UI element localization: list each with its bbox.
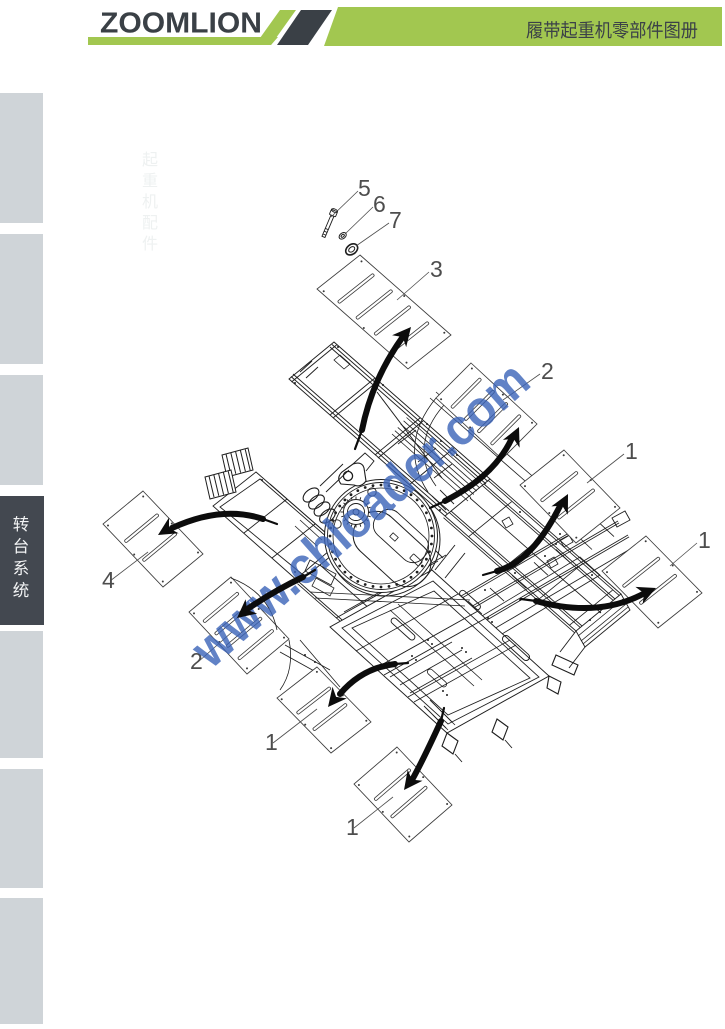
svg-text:1: 1 [265,729,278,755]
svg-text:4: 4 [102,567,115,593]
svg-text:ZOOMLION: ZOOMLION [100,8,262,40]
svg-text:2: 2 [541,358,554,384]
svg-text:1: 1 [346,814,359,840]
svg-text:7: 7 [389,207,402,233]
svg-text:履带起重机零部件图册: 履带起重机零部件图册 [526,20,698,41]
svg-text:起重机配件: 起重机配件 [142,151,158,253]
svg-text:6: 6 [373,191,386,217]
svg-text:1: 1 [698,527,711,553]
svg-text:3: 3 [430,256,443,282]
svg-text:1: 1 [625,438,638,464]
svg-text:5: 5 [358,175,371,201]
